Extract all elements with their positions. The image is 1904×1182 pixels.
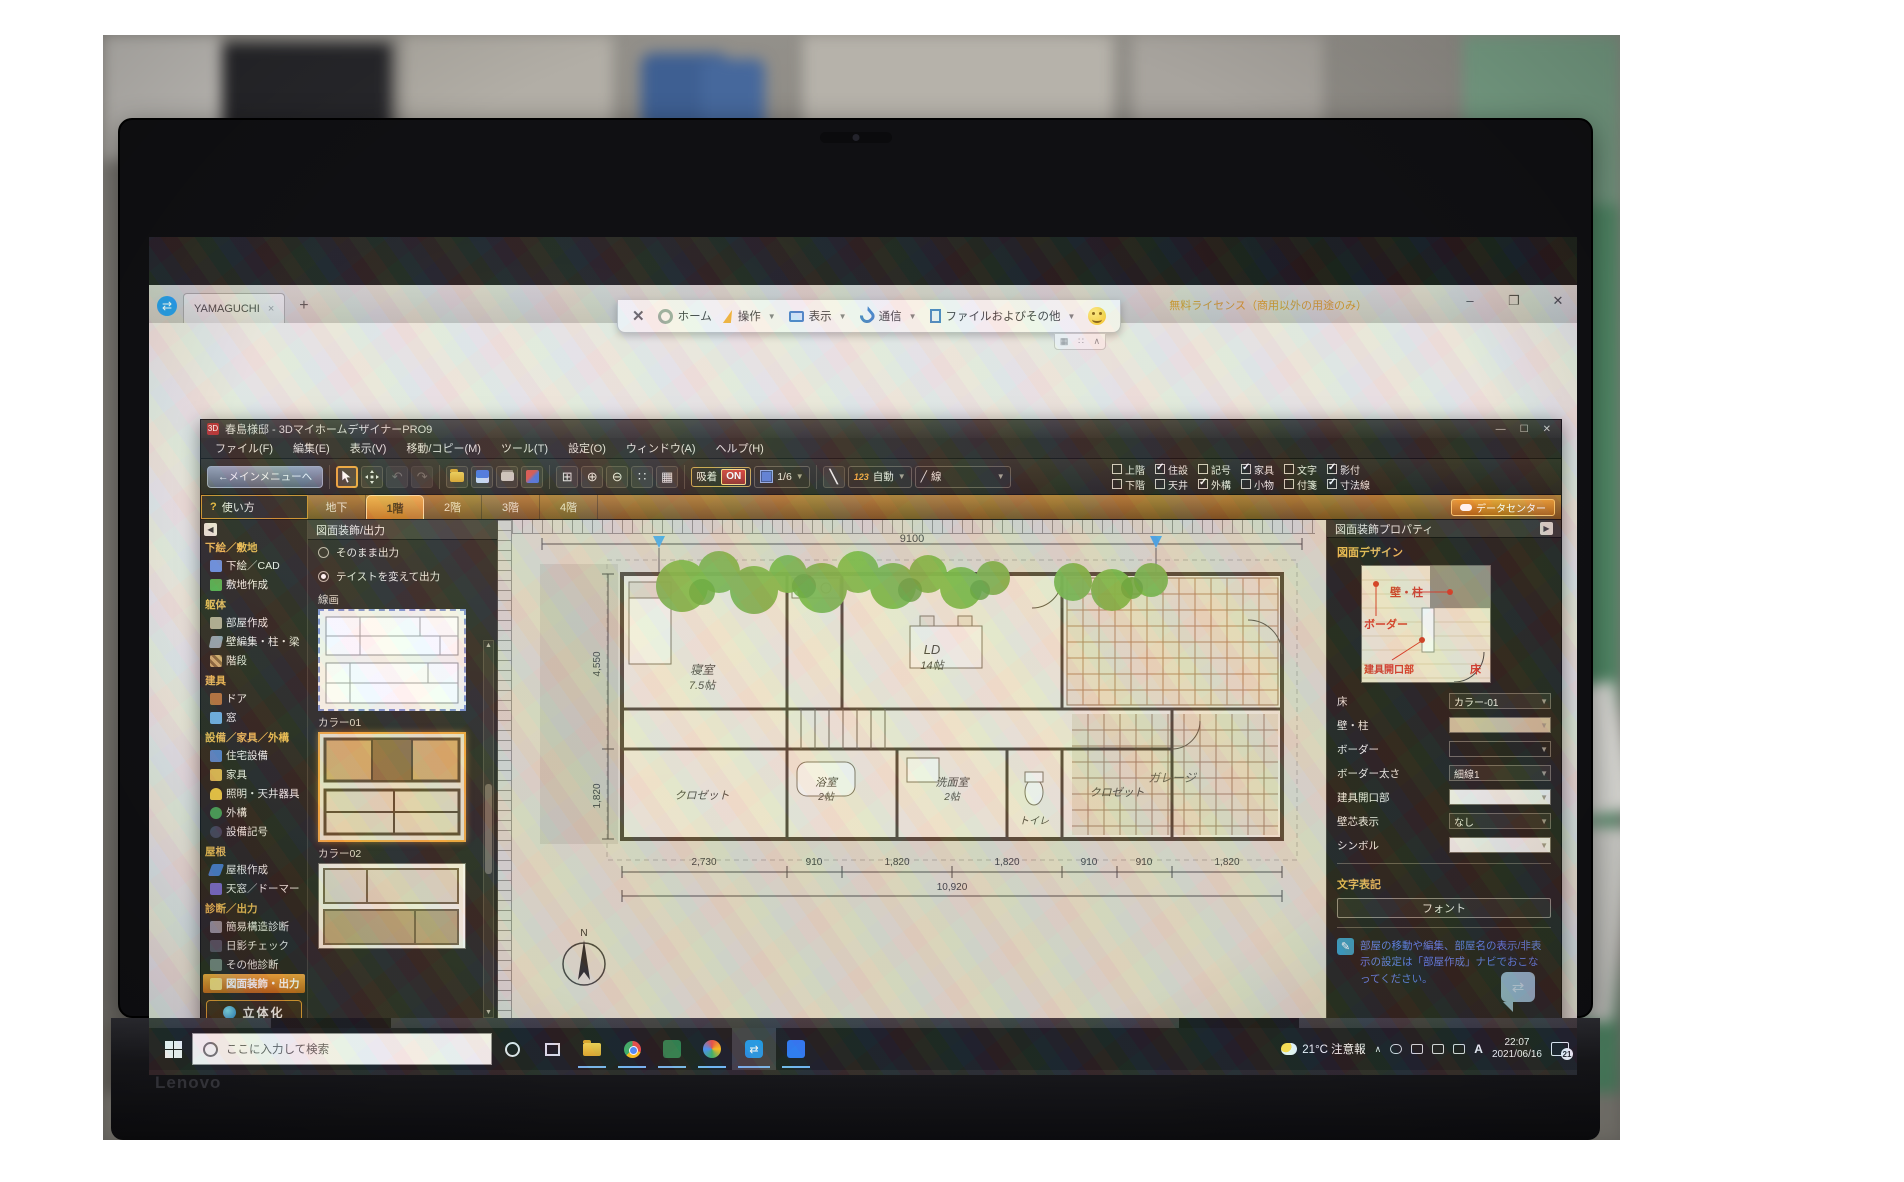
- wall-color-dropdown[interactable]: ▼: [1449, 717, 1551, 733]
- view-menu[interactable]: 表示▼: [789, 308, 847, 324]
- dots-icon[interactable]: ∷: [1078, 336, 1084, 347]
- field-label: 床: [1337, 694, 1449, 709]
- snap-label: 吸着: [696, 469, 717, 484]
- battery-icon[interactable]: [1411, 1044, 1423, 1054]
- maximize-button[interactable]: ❐: [1505, 293, 1523, 309]
- room-label-garage: ガレージ: [1148, 771, 1198, 785]
- checkbox-exterior[interactable]: [1198, 479, 1208, 489]
- style-group-label: カラー02: [308, 842, 497, 863]
- sidebar-item-window[interactable]: 窓: [201, 708, 307, 727]
- files-menu[interactable]: ファイルおよびその他▼: [930, 308, 1076, 324]
- layer-label: 天井: [1168, 477, 1188, 492]
- remote-desktop: 3D 春島様邸 - 3DマイホームデザイナーPRO9 — ☐ ✕ ファイル(F)…: [149, 323, 1577, 1028]
- sidebar-item-site[interactable]: 敷地作成: [201, 575, 307, 594]
- room-size: 2帖: [943, 791, 962, 803]
- panel-title: 図面装飾/出力: [308, 520, 497, 540]
- ime-indicator[interactable]: A: [1474, 1042, 1483, 1056]
- text-section-header: 文字表記: [1327, 870, 1561, 895]
- layer-label: 下階: [1125, 477, 1145, 492]
- font-button[interactable]: フォント: [1337, 898, 1551, 918]
- floor-plan-drawing: 9100: [512, 534, 1326, 1058]
- question-icon: ?: [210, 501, 217, 513]
- app-title: 春島様邸 - 3DマイホームデザイナーPRO9: [225, 421, 1490, 437]
- sidebar-item-wall[interactable]: 壁編集・柱・梁: [201, 632, 307, 651]
- menu-file[interactable]: ファイル(F): [215, 440, 273, 456]
- chrome-icon: [624, 1041, 641, 1058]
- room-label-ld: LD: [924, 642, 941, 657]
- menu-move-copy[interactable]: 移動/コピー(M): [406, 440, 481, 456]
- dimension: 2,730: [691, 857, 716, 868]
- grid-scale-dropdown[interactable]: 1/6▼: [754, 466, 810, 488]
- checkbox-symbols[interactable]: [1198, 464, 1208, 474]
- sidebar-item-sketch-cad[interactable]: 下絵／CAD: [201, 556, 307, 575]
- field-label: ボーダー太さ: [1337, 766, 1449, 781]
- field-label: 壁・柱: [1337, 718, 1449, 733]
- thumbnail-scrollbar[interactable]: ▲▼: [483, 640, 494, 1018]
- compass-north-label: N: [580, 928, 587, 939]
- sidebar-item-shadow-check[interactable]: 日影チェック: [201, 936, 307, 955]
- folder-icon: [450, 472, 464, 482]
- cortana-icon: [505, 1042, 520, 1057]
- dimension-left-lower: 1,820: [592, 783, 603, 808]
- menu-window[interactable]: ウィンドウ(A): [626, 440, 696, 456]
- numbers-icon: 123: [854, 472, 869, 482]
- tray-chevron-icon[interactable]: ∧: [1375, 1044, 1382, 1055]
- sidebar-item-dormer[interactable]: 天窓／ドーマー: [201, 879, 307, 898]
- room-label-toilet: トイレ: [1019, 816, 1049, 827]
- image-icon: [526, 470, 539, 483]
- teamviewer-button[interactable]: ⇄: [732, 1028, 776, 1070]
- image-export-button[interactable]: [521, 466, 543, 488]
- fit-view-button[interactable]: ⊞: [556, 466, 578, 488]
- zoom-out-button[interactable]: ⊖: [606, 466, 628, 488]
- layer-label: 文字: [1297, 462, 1317, 477]
- grid-scale-icon: [760, 470, 773, 483]
- undo-button[interactable]: ↶: [386, 466, 408, 488]
- sidebar-item-structure-check[interactable]: 簡易構造診断: [201, 917, 307, 936]
- dimension: 910: [1136, 857, 1153, 868]
- layer-label: 家具: [1254, 462, 1274, 477]
- dimension: 910: [1081, 857, 1098, 868]
- tab-floor-4[interactable]: 4階: [540, 495, 598, 519]
- app-icon: 3D: [207, 423, 219, 435]
- cortana-button[interactable]: [492, 1028, 532, 1070]
- cloud-tray-icon[interactable]: [1390, 1044, 1402, 1054]
- save-button[interactable]: [471, 466, 493, 488]
- checkbox-shading[interactable]: [1327, 464, 1337, 474]
- design-section-header: 図面デザイン: [1327, 538, 1561, 563]
- collapse-sidebar-icon[interactable]: ◀: [204, 523, 217, 536]
- room-icon: [210, 617, 222, 629]
- sidebar-section-header: 躯体: [201, 594, 307, 613]
- pen-tool[interactable]: ╲: [823, 466, 845, 488]
- room-label-bedroom: 寝室: [690, 663, 716, 677]
- data-center-button[interactable]: データセンター: [1451, 499, 1555, 516]
- menu-settings[interactable]: 設定(O): [568, 440, 606, 456]
- local-taskbar: ここに入力して検索 ⇄ 21°C 注意報 ∧ A 22:072021/0: [149, 1028, 1577, 1070]
- menu-view[interactable]: 表示(V): [350, 440, 387, 456]
- equipment-icon: [210, 750, 222, 762]
- pan-tool[interactable]: [361, 466, 383, 488]
- floor-color-dropdown[interactable]: カラー-01▼: [1449, 693, 1551, 709]
- notification-center-icon[interactable]: 21: [1551, 1042, 1569, 1056]
- scroll-down-icon[interactable]: ▼: [485, 1009, 492, 1016]
- checkbox-lower-floor[interactable]: [1112, 479, 1122, 489]
- dimension-auto-dropdown[interactable]: 123 自動▼: [848, 466, 912, 488]
- diagnosis-icon: [210, 959, 222, 971]
- task-view-icon: [545, 1043, 560, 1056]
- sidebar-section-header: 診断／出力: [201, 898, 307, 917]
- radio-output-styled[interactable]: テイストを変えて出力: [308, 564, 497, 588]
- task-view-button[interactable]: [532, 1028, 572, 1070]
- sidebar-item-stairs[interactable]: 階段: [201, 651, 307, 670]
- app-close-button[interactable]: ✕: [1543, 424, 1551, 435]
- network-icon[interactable]: [1432, 1044, 1444, 1054]
- nav-sidebar: ◀ 下絵／敷地 下絵／CAD 敷地作成 躯体 部屋作成 壁編集・柱・梁 階段 建…: [201, 520, 308, 1058]
- layer-label: 影付: [1340, 462, 1360, 477]
- horizontal-ruler: [512, 520, 1315, 534]
- tree-icon: [210, 807, 222, 819]
- room-label-closet: クロゼット: [1090, 786, 1145, 799]
- stairs-icon: [210, 655, 222, 667]
- dimension: 910: [806, 857, 823, 868]
- sidebar-item-equipment[interactable]: 住宅設備: [201, 746, 307, 765]
- snap-toggle[interactable]: 吸着 ON: [691, 467, 751, 487]
- file-explorer-button[interactable]: [572, 1028, 612, 1070]
- sidebar-section-header: 建具: [201, 670, 307, 689]
- floor-tab-row: ?使い方 地下 1階 2階 3階 4階 データセンター: [201, 495, 1561, 520]
- photos-icon: [787, 1040, 805, 1058]
- license-text: 無料ライセンス（商用以外の用途のみ）: [1169, 297, 1367, 313]
- dimension: 1,820: [884, 857, 909, 868]
- floor-plan-canvas[interactable]: ∧ 9100: [498, 520, 1326, 1058]
- field-label: 建具開口部: [1337, 790, 1449, 805]
- preview-label-wall: 壁・柱: [1390, 585, 1423, 599]
- feedback-smiley-icon[interactable]: [1088, 307, 1106, 325]
- app-minimize-button[interactable]: —: [1496, 424, 1506, 435]
- menu-tools[interactable]: ツール(T): [501, 440, 548, 456]
- close-session-icon[interactable]: ✕: [632, 307, 645, 325]
- room-size: 7.5帖: [689, 679, 717, 692]
- dimension: 1,820: [994, 857, 1019, 868]
- file-icon: [930, 309, 941, 323]
- dormer-icon: [210, 883, 222, 895]
- globe-icon: [223, 1006, 236, 1019]
- sidebar-section-header: 設備／家具／外構: [201, 727, 307, 746]
- panel-title: 図面装飾プロパティ: [1335, 521, 1433, 537]
- cursor-icon: [341, 470, 353, 484]
- communicate-menu[interactable]: 通信▼: [860, 308, 917, 324]
- cortana-icon: [203, 1042, 218, 1057]
- help-button[interactable]: ?使い方: [201, 495, 308, 519]
- layer-label: 寸法線: [1340, 477, 1370, 492]
- checkbox-upper-floor[interactable]: [1112, 464, 1122, 474]
- layer-label: 小物: [1254, 477, 1274, 492]
- weather-icon: [1281, 1043, 1297, 1055]
- move-icon: [365, 470, 379, 484]
- sketch-icon: [210, 560, 222, 572]
- preview-label-border: ボーダー: [1364, 617, 1408, 631]
- teamviewer-toolbar: ✕ ホーム 操作▼ 表示▼ 通信▼ ファイルおよびその他▼: [617, 300, 1121, 333]
- open-file-button[interactable]: [446, 466, 468, 488]
- tab-basement[interactable]: 地下: [308, 495, 366, 519]
- sidebar-item-exterior[interactable]: 外構: [201, 803, 307, 822]
- menu-edit[interactable]: 編集(E): [293, 440, 330, 456]
- shadow-icon: [210, 940, 222, 952]
- toolbar-collapse-strip[interactable]: ▦ ∷ ∧: [1054, 333, 1106, 350]
- dimension-total: 10,920: [937, 882, 968, 893]
- app-maximize-button[interactable]: ☐: [1520, 424, 1529, 435]
- room-label-bath: 浴室: [815, 776, 839, 789]
- preview-label-opening: 建具開口部: [1363, 663, 1414, 676]
- pinwheel-app-button[interactable]: [692, 1028, 732, 1070]
- layer-label: 付箋: [1297, 477, 1317, 492]
- lightning-icon: [723, 310, 735, 323]
- room-label-washroom: 洗面室: [936, 776, 971, 789]
- excel-button[interactable]: [652, 1028, 692, 1070]
- app-title-bar[interactable]: 3D 春島様邸 - 3DマイホームデザイナーPRO9 — ☐ ✕: [201, 420, 1561, 438]
- window-icon: [210, 712, 222, 724]
- monitor-icon: [789, 311, 804, 322]
- style-thumbnail-color02[interactable]: [318, 863, 466, 949]
- decor-output-panel: 図面装飾/出力 そのまま出力 テイストを変えて出力 線画: [308, 520, 498, 1058]
- new-tab-button[interactable]: +: [299, 297, 308, 315]
- sidebar-item-roof[interactable]: 屋根作成: [201, 860, 307, 879]
- checkbox-furniture[interactable]: [1241, 464, 1251, 474]
- field-label: ボーダー: [1337, 742, 1449, 757]
- speaker-icon[interactable]: [1453, 1044, 1465, 1054]
- sidebar-item-lighting[interactable]: 照明・天井器具: [201, 784, 307, 803]
- session-tab-label: YAMAGUCHI: [194, 303, 260, 315]
- sidebar-item-symbols[interactable]: 設備記号: [201, 822, 307, 841]
- preview-label-floor: 床: [1470, 662, 1482, 676]
- tab-close-icon[interactable]: ×: [268, 303, 274, 315]
- local-start-button[interactable]: [165, 1041, 182, 1058]
- checkbox-sticky-notes[interactable]: [1284, 479, 1294, 489]
- tab-floor-1[interactable]: 1階: [366, 495, 424, 519]
- wall-center-dropdown[interactable]: なし▼: [1449, 813, 1551, 829]
- radio-output-as-is[interactable]: そのまま出力: [308, 540, 497, 564]
- webcam-lens: [852, 134, 859, 141]
- room-size: 14帖: [920, 659, 945, 672]
- checkbox-ceiling[interactable]: [1155, 479, 1165, 489]
- line-style-dropdown[interactable]: ╱ 線▼: [915, 466, 1011, 488]
- design-preview: 壁・柱 ボーダー 建具開口部 床: [1361, 565, 1491, 683]
- redo-button[interactable]: ↷: [411, 466, 433, 488]
- style-group-label: 線画: [308, 588, 497, 609]
- radio-icon: [318, 571, 329, 582]
- pinwheel-icon: [703, 1040, 721, 1058]
- output-icon: [210, 978, 222, 990]
- room-size: 2帖: [817, 791, 836, 803]
- layer-label: 外構: [1211, 477, 1231, 492]
- chrome-button[interactable]: [612, 1028, 652, 1070]
- info-clip-icon: ✎: [1337, 938, 1354, 955]
- collapse-icon[interactable]: ∧: [1094, 336, 1101, 347]
- grid-button[interactable]: ▦: [656, 466, 678, 488]
- line-icon: ╱: [921, 471, 927, 483]
- sidebar-item-room[interactable]: 部屋作成: [201, 613, 307, 632]
- local-search-input[interactable]: ここに入力して検索: [192, 1033, 492, 1065]
- decor-properties-panel: 図面装飾プロパティ▶ 図面デザイン: [1326, 520, 1561, 1058]
- weather-widget[interactable]: 21°C 注意報: [1281, 1041, 1365, 1057]
- symbol-color-dropdown[interactable]: ▼: [1449, 837, 1551, 853]
- style-thumbnail-lineart[interactable]: [318, 609, 466, 711]
- phone-icon: [857, 306, 877, 326]
- printer-icon: [501, 472, 514, 481]
- site-icon: [210, 579, 222, 591]
- door-icon: [210, 693, 222, 705]
- scrollbar-thumb[interactable]: [485, 784, 492, 874]
- layer-label: 上階: [1125, 462, 1145, 477]
- expand-panel-icon[interactable]: ▶: [1540, 522, 1553, 535]
- symbol-icon: [210, 826, 222, 838]
- menu-bar: ファイル(F) 編集(E) 表示(V) 移動/コピー(M) ツール(T) 設定(…: [201, 438, 1561, 459]
- style-thumbnail-color01[interactable]: [318, 732, 466, 842]
- teamviewer-session-tab[interactable]: YAMAGUCHI ×: [183, 293, 285, 323]
- close-button[interactable]: ✕: [1549, 293, 1567, 309]
- roof-icon: [208, 864, 224, 876]
- cloud-icon: [1460, 504, 1472, 511]
- teamviewer-logo-icon: ⇄: [157, 296, 177, 316]
- clock[interactable]: 22:072021/06/16: [1492, 1037, 1542, 1062]
- layer-visibility-group: 上階下階 住設天井 記号外構 家具小物 文字付箋 影付寸法線: [1112, 462, 1370, 491]
- dimension: 1,820: [1214, 857, 1239, 868]
- snap-state-badge: ON: [721, 469, 746, 485]
- sidebar-item-drawing-output[interactable]: 図面装飾・出力: [203, 974, 305, 993]
- dimension-left-upper: 4,550: [592, 651, 603, 676]
- checkbox-dimension-lines[interactable]: [1327, 479, 1337, 489]
- tab-floor-3[interactable]: 3階: [482, 495, 540, 519]
- wall-icon: [209, 636, 224, 648]
- floppy-icon: [476, 470, 489, 483]
- grid-view-icon[interactable]: ▦: [1060, 336, 1069, 347]
- opening-color-dropdown[interactable]: ▼: [1449, 789, 1551, 805]
- checkbox-small-items[interactable]: [1241, 479, 1251, 489]
- home-menu[interactable]: ホーム: [658, 308, 712, 324]
- zoom-in-button[interactable]: ⊕: [581, 466, 603, 488]
- layer-label: 住設: [1168, 462, 1188, 477]
- photos-button[interactable]: [776, 1028, 816, 1070]
- select-tool[interactable]: [336, 466, 358, 488]
- sidebar-item-door[interactable]: ドア: [201, 689, 307, 708]
- teamviewer-icon: ⇄: [745, 1040, 763, 1058]
- border-width-dropdown[interactable]: 細線1▼: [1449, 765, 1551, 781]
- webcam: [820, 132, 892, 143]
- style-group-label: カラー01: [308, 711, 497, 732]
- folder-icon: [583, 1043, 601, 1056]
- sidebar-item-furniture[interactable]: 家具: [201, 765, 307, 784]
- snap-grid-button[interactable]: ∷: [631, 466, 653, 488]
- sidebar-section-header: 屋根: [201, 841, 307, 860]
- photo-of-laptop: ⇄ YAMAGUCHI × + 無料ライセンス（商用以外の用途のみ） – ❐ ✕…: [103, 35, 1620, 1140]
- structure-icon: [210, 921, 222, 933]
- field-label: 壁芯表示: [1337, 814, 1449, 829]
- scroll-up-icon[interactable]: ▲: [485, 642, 492, 649]
- sidebar-item-other-check[interactable]: その他診断: [201, 955, 307, 974]
- actions-menu[interactable]: 操作▼: [725, 308, 776, 324]
- app-window: 3D 春島様邸 - 3DマイホームデザイナーPRO9 — ☐ ✕ ファイル(F)…: [200, 419, 1562, 1075]
- vertical-ruler: [498, 520, 512, 1058]
- teamviewer-watermark-icon: ⇄: [1501, 972, 1535, 1010]
- print-button[interactable]: [496, 466, 518, 488]
- checkbox-fixtures[interactable]: [1155, 464, 1165, 474]
- laptop-bezel: ⇄ YAMAGUCHI × + 無料ライセンス（商用以外の用途のみ） – ❐ ✕…: [118, 118, 1593, 1018]
- main-menu-button[interactable]: ←メインメニューへ: [207, 466, 323, 488]
- border-color-dropdown[interactable]: ▼: [1449, 741, 1551, 757]
- laptop-screen: ⇄ YAMAGUCHI × + 無料ライセンス（商用以外の用途のみ） – ❐ ✕…: [149, 237, 1577, 1075]
- room-label-closet: クロゼット: [675, 789, 730, 802]
- field-label: シンボル: [1337, 838, 1449, 853]
- radio-icon: [318, 547, 329, 558]
- tab-floor-2[interactable]: 2階: [424, 495, 482, 519]
- sidebar-section-header: 下絵／敷地: [201, 537, 307, 556]
- minimize-button[interactable]: –: [1461, 293, 1479, 309]
- main-toolbar: ←メインメニューへ ↶ ↷ ⊞ ⊕ ⊖: [201, 459, 1561, 495]
- menu-help[interactable]: ヘルプ(H): [716, 440, 764, 456]
- lenovo-logo: Lenovo: [155, 1073, 221, 1093]
- furniture-icon: [210, 769, 222, 781]
- layer-label: 記号: [1211, 462, 1231, 477]
- dimension-top: 9100: [900, 534, 924, 545]
- lighting-icon: [210, 788, 222, 800]
- excel-icon: [663, 1040, 681, 1058]
- checkbox-text[interactable]: [1284, 464, 1294, 474]
- pen-icon: ╲: [830, 469, 838, 485]
- home-icon: [658, 309, 673, 324]
